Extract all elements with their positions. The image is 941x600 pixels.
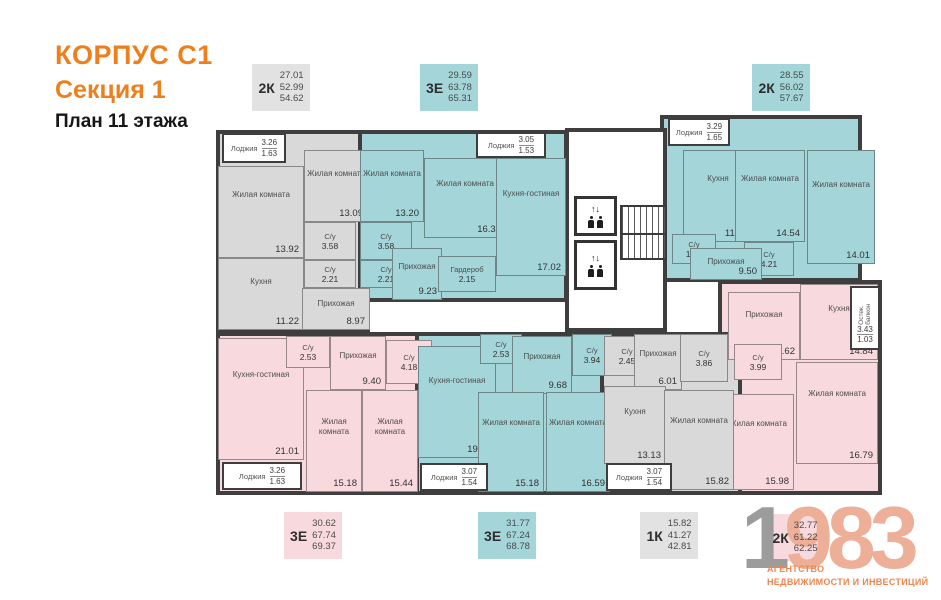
room-area: 11.22 <box>276 316 299 327</box>
room-name: С/у <box>403 353 414 362</box>
area-with-coef: 1.53 <box>519 145 535 156</box>
room-name: Жилая комната <box>549 418 607 428</box>
room: С/у3.58 <box>304 222 356 260</box>
loggia: Лоджия3.051.53 <box>476 132 546 158</box>
room-area: 2.21 <box>322 274 339 284</box>
room-area: 2.15 <box>459 274 476 284</box>
room-name: Прихожая <box>395 262 439 272</box>
elevator-2: ↑↓ <box>574 240 617 290</box>
area-total: 3.07 <box>647 467 663 477</box>
room-name: Жилая комната <box>667 416 731 426</box>
apartment-type-legend: 1К15.8241.2742.81 <box>640 512 698 559</box>
apartment-type-legend: 3Е30.6267.7469.37 <box>284 512 342 559</box>
legend-type: 2К <box>758 80 774 96</box>
room-area: 4.18 <box>401 362 418 372</box>
room: С/у2.21 <box>304 260 356 288</box>
room-name: С/у <box>763 250 774 259</box>
legend-values: 15.8241.2742.81 <box>668 518 692 554</box>
room: Кухня11.22 <box>218 258 304 330</box>
room: Жилая комната13.92 <box>218 166 304 258</box>
room-name: С/у <box>621 347 632 356</box>
legend-type: 2К <box>258 80 274 96</box>
page-title-block: КОРПУС С1 Секция 1 План 11 этажа <box>55 40 213 133</box>
room: Кухня13.13 <box>604 386 666 464</box>
legend-values: 27.0152.9954.62 <box>280 70 304 106</box>
room-name: С/у <box>324 265 335 274</box>
loggia-label: Лоджия <box>488 141 515 150</box>
legend-value: 29.59 <box>448 70 472 82</box>
area-with-coef: 1.63 <box>270 476 286 487</box>
room-name: С/у <box>752 353 763 362</box>
area-total: 3.26 <box>262 138 278 148</box>
elevator-persons-icon <box>588 265 603 277</box>
room-area: 14.01 <box>846 250 870 261</box>
room-area: 2.45 <box>619 356 636 366</box>
room-name: Кухня-гостиная <box>221 370 301 380</box>
legend-value: 30.62 <box>312 518 336 530</box>
section-title: Секция 1 <box>55 76 213 105</box>
room-name: Жилая комната <box>365 417 415 436</box>
area-with-coef: 1.03 <box>857 334 873 345</box>
room: Жилая комната15.82 <box>664 390 734 490</box>
agency-tagline-line1: АГЕНТСТВО <box>767 563 928 576</box>
loggia-label: Лоджия <box>431 473 458 482</box>
room: Жилая комната15.18 <box>306 390 362 492</box>
room-name: Прихожая <box>693 257 759 267</box>
loggia-label: Лоджия <box>239 472 266 481</box>
legend-value: 54.62 <box>280 93 304 105</box>
apartment-type-legend: 2К28.5556.0257.67 <box>752 64 810 111</box>
room-name: Кухня <box>221 277 301 287</box>
area-with-coef: 1.54 <box>647 477 663 488</box>
legend-value: 41.27 <box>668 530 692 542</box>
legend-value: 42.81 <box>668 541 692 553</box>
legend-value: 32.77 <box>794 520 818 532</box>
legend-values: 29.5963.7865.31 <box>448 70 472 106</box>
room: Кухня-гостиная17.02 <box>496 158 566 276</box>
room: С/у3.99 <box>734 344 782 380</box>
legend-values: 30.6267.7469.37 <box>312 518 336 554</box>
room: Жилая комната13.20 <box>360 150 424 222</box>
loggia-label: Лоджия <box>616 473 643 482</box>
legend-value: 69.37 <box>312 541 336 553</box>
room-area: 9.50 <box>739 266 758 277</box>
room-area: 9.40 <box>363 376 382 387</box>
room-area: 13.20 <box>395 208 419 219</box>
glazed-balcony: Остек. балкон3.431.03 <box>850 286 880 350</box>
room: Жилая комната14.54 <box>735 150 805 242</box>
room-area: 3.94 <box>584 355 601 365</box>
legend-value: 62.25 <box>794 543 818 555</box>
room: Жилая комната13.09 <box>304 150 368 222</box>
apartment-type-legend: 3Е29.5963.7865.31 <box>420 64 478 111</box>
room: Прихожая9.40 <box>330 336 386 390</box>
room-name: Жилая комната <box>363 169 421 179</box>
room: Жилая комната16.79 <box>796 362 878 464</box>
room-name: Прихожая <box>305 299 367 309</box>
elevator-arrows-icon: ↑↓ <box>591 205 600 214</box>
room-area: 17.02 <box>537 262 561 273</box>
area-total: 3.07 <box>462 467 478 477</box>
area-total: 3.29 <box>707 122 723 132</box>
room-area: 15.98 <box>765 476 789 487</box>
room-name: Прихожая <box>731 310 797 320</box>
legend-values: 31.7767.2468.78 <box>506 518 530 554</box>
balcony-areas: 3.431.03 <box>857 325 873 345</box>
room-area: 3.58 <box>322 241 339 251</box>
room-name: С/у <box>380 232 391 241</box>
room-area: 13.92 <box>275 244 299 255</box>
legend-values: 28.5556.0257.67 <box>780 70 804 106</box>
building-title: КОРПУС С1 <box>55 40 213 71</box>
room-name: Жилая комната <box>427 179 503 189</box>
apartment-type-legend: 3Е31.7767.2468.78 <box>478 512 536 559</box>
room: Жилая комната15.44 <box>362 390 418 492</box>
legend-type: 2К <box>772 530 788 546</box>
area-total: 3.05 <box>519 135 535 145</box>
balcony-label: Остек. балкон <box>858 291 872 325</box>
loggia-areas: 3.051.53 <box>519 135 535 155</box>
room-name: Прихожая <box>515 352 569 362</box>
room-area: 3.99 <box>750 362 767 372</box>
loggia-areas: 3.071.54 <box>462 467 478 487</box>
room: Прихожая8.97 <box>302 288 370 330</box>
loggia-areas: 3.261.63 <box>270 466 286 486</box>
legend-type: 3Е <box>290 528 307 544</box>
room-area: 16.59 <box>581 478 605 489</box>
room-name: С/у <box>495 340 506 349</box>
legend-value: 57.67 <box>780 93 804 105</box>
room: Жилая комната14.01 <box>807 150 875 264</box>
legend-values: 32.7761.2262.25 <box>794 520 818 556</box>
room-area: 15.44 <box>389 478 413 489</box>
apartment-type-legend: 2К27.0152.9954.62 <box>252 64 310 111</box>
legend-value: 52.99 <box>280 82 304 94</box>
elevator-persons-icon <box>588 216 603 228</box>
room-name: Жилая комната <box>221 190 301 200</box>
room: С/у2.53 <box>286 336 330 368</box>
room-name: Кухня-гостиная <box>421 376 493 386</box>
agency-tagline: АГЕНТСТВО НЕДВИЖИМОСТИ И ИНВЕСТИЦИЙ <box>767 563 928 588</box>
staircase-icon <box>620 205 667 260</box>
area-total: 3.26 <box>270 466 286 476</box>
legend-value: 27.01 <box>280 70 304 82</box>
room-name: С/у <box>380 265 391 274</box>
room-area: 8.97 <box>347 316 366 327</box>
legend-value: 65.31 <box>448 93 472 105</box>
room-name: Жилая комната <box>799 389 875 399</box>
room-name: Прихожая <box>637 349 679 359</box>
floor-plan-page: КОРПУС С1 Секция 1 План 11 этажа ↑↓ ↑↓ Л… <box>0 0 941 600</box>
room-area: 13.13 <box>637 450 661 461</box>
room: Жилая комната16.59 <box>546 392 610 492</box>
room: Прихожая9.50 <box>690 248 762 280</box>
room-name: С/у <box>302 343 313 352</box>
area-total: 3.43 <box>857 325 873 335</box>
legend-value: 67.74 <box>312 530 336 542</box>
room-area: 21.01 <box>275 446 299 457</box>
area-with-coef: 1.63 <box>262 148 278 159</box>
loggia-areas: 3.291.65 <box>707 122 723 142</box>
loggia-label: Лоджия <box>231 144 258 153</box>
room-area: 15.18 <box>515 478 539 489</box>
legend-value: 63.78 <box>448 82 472 94</box>
legend-value: 56.02 <box>780 82 804 94</box>
legend-type: 3Е <box>484 528 501 544</box>
room-name: Жилая комната <box>307 169 365 179</box>
room: Прихожая9.23 <box>392 248 442 300</box>
elevator-1: ↑↓ <box>574 196 617 236</box>
legend-type: 1К <box>646 528 662 544</box>
room-name: Прихожая <box>333 351 383 361</box>
room-area: 15.82 <box>705 476 729 487</box>
room-area: 9.68 <box>549 380 568 391</box>
room-name: С/у <box>586 346 597 355</box>
room-name: Кухня <box>607 407 663 417</box>
area-with-coef: 1.65 <box>707 132 723 143</box>
room-area: 14.54 <box>776 228 800 239</box>
elevator-arrows-icon: ↑↓ <box>591 254 600 263</box>
room-area: 15.18 <box>333 478 357 489</box>
room-name: Жилая комната <box>309 417 359 436</box>
legend-type: 3Е <box>426 80 443 96</box>
loggia: Лоджия3.261.63 <box>222 133 286 163</box>
loggia: Лоджия3.261.63 <box>222 462 302 490</box>
loggia: Лоджия3.291.65 <box>668 118 730 146</box>
floor-title: План 11 этажа <box>55 111 213 133</box>
legend-value: 61.22 <box>794 532 818 544</box>
room-area: 16.79 <box>849 450 873 461</box>
room-name: Жилая комната <box>725 419 791 429</box>
loggia: Лоджия3.071.54 <box>420 463 488 491</box>
legend-value: 15.82 <box>668 518 692 530</box>
legend-value: 68.78 <box>506 541 530 553</box>
agency-tagline-line2: НЕДВИЖИМОСТИ И ИНВЕСТИЦИЙ <box>767 576 928 589</box>
room: Прихожая9.68 <box>512 336 572 394</box>
room-area: 4.21 <box>761 259 778 269</box>
room: Прихожая6.01 <box>634 334 682 390</box>
room: Гардероб2.15 <box>438 256 496 292</box>
area-with-coef: 1.54 <box>462 477 478 488</box>
room: С/у3.86 <box>680 334 728 382</box>
room-area: 9.23 <box>419 286 438 297</box>
room-area: 2.53 <box>493 349 510 359</box>
loggia-label: Лоджия <box>676 128 703 137</box>
room-area: 2.53 <box>300 352 317 362</box>
legend-value: 28.55 <box>780 70 804 82</box>
loggia-areas: 3.071.54 <box>647 467 663 487</box>
loggia: Лоджия3.071.54 <box>606 463 672 491</box>
room: Жилая комната16.39 <box>424 158 506 238</box>
legend-value: 31.77 <box>506 518 530 530</box>
room-name: Жилая комната <box>481 418 541 428</box>
room-name: С/у <box>698 349 709 358</box>
room-area: 3.86 <box>696 358 713 368</box>
room-name: Жилая комната <box>738 174 802 184</box>
loggia-areas: 3.261.63 <box>262 138 278 158</box>
room-name: Жилая комната <box>810 180 872 190</box>
room-name: С/у <box>324 232 335 241</box>
room-name: Кухня-гостиная <box>499 189 563 199</box>
legend-value: 67.24 <box>506 530 530 542</box>
room-name: Гардероб <box>451 265 484 274</box>
